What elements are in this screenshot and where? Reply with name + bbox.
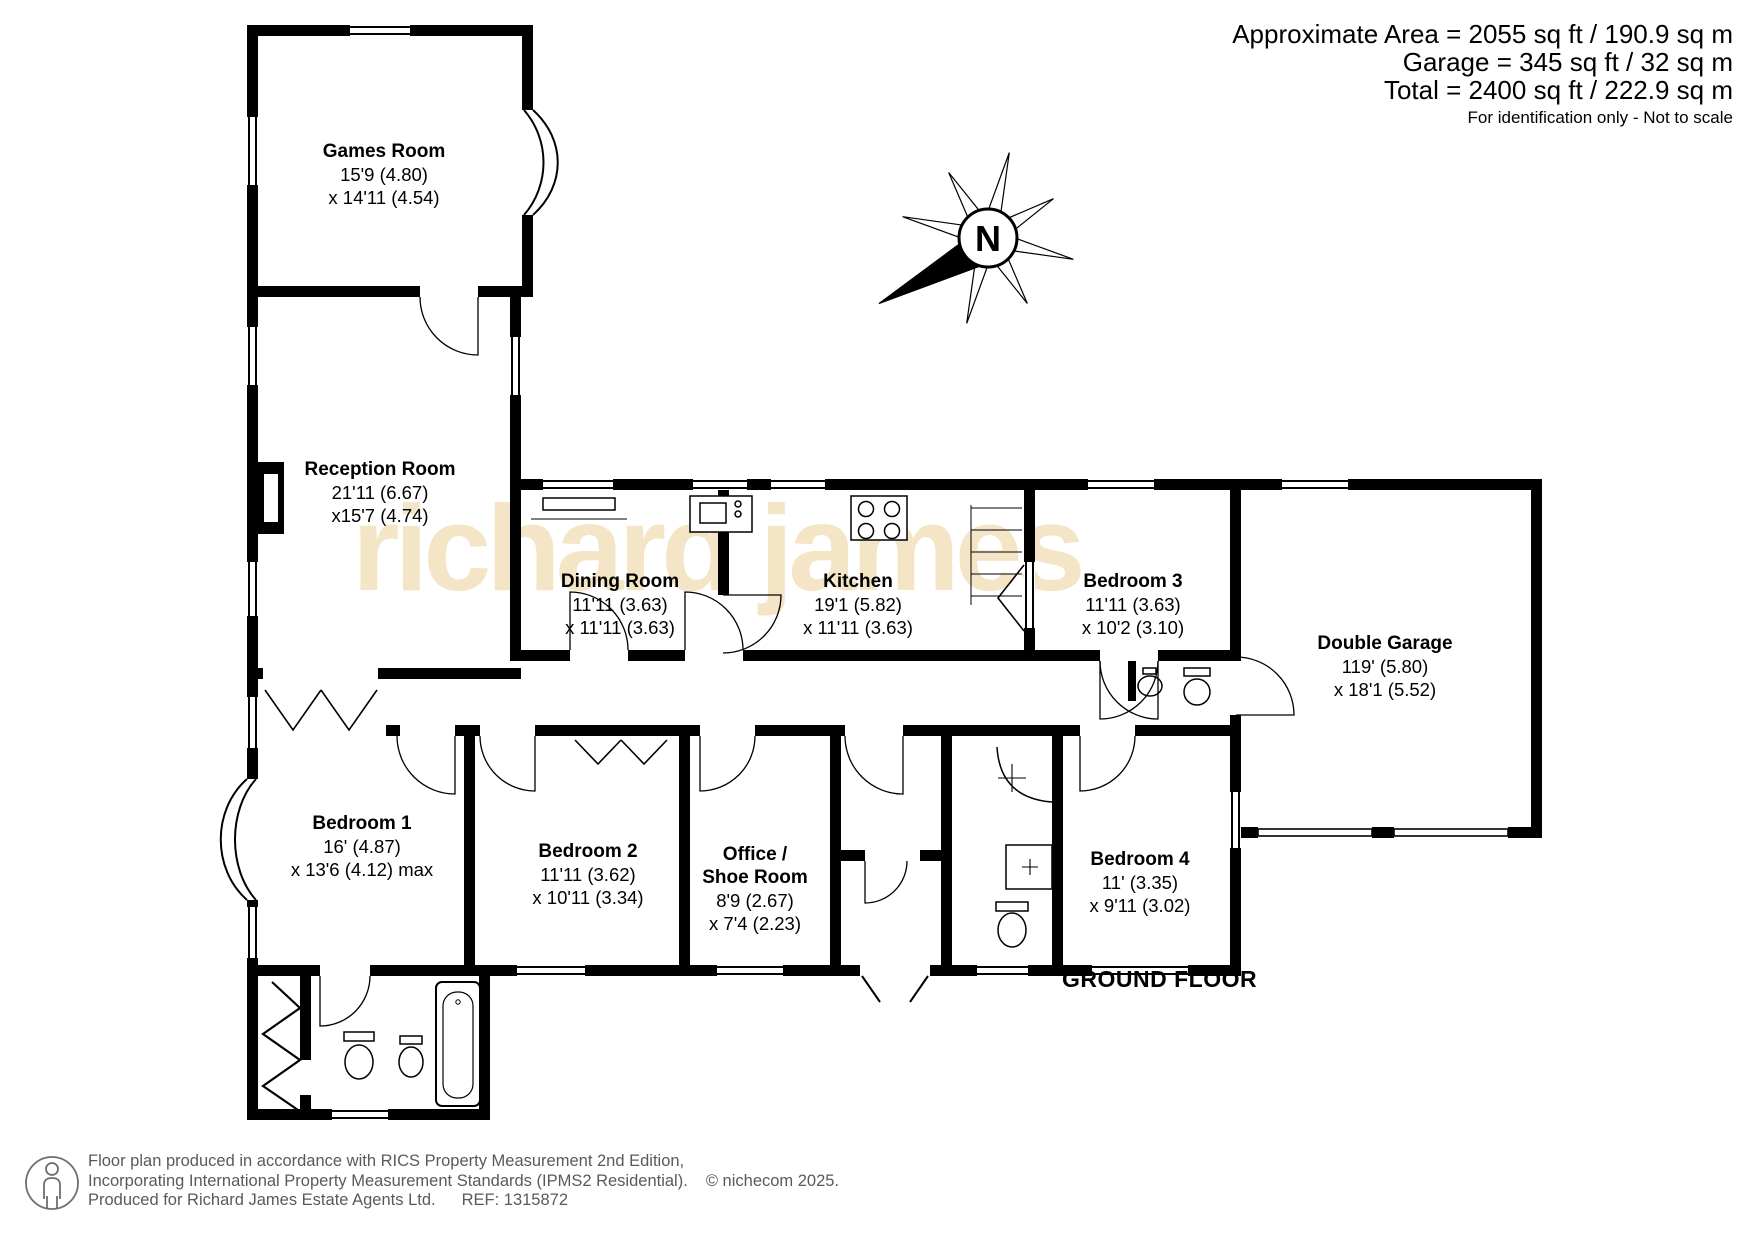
room-label-bedroom-3: Bedroom 3 11'11 (3.63) x 10'2 (3.10) (1013, 570, 1253, 639)
room-dimensions: 11'11 (3.63) (500, 593, 740, 616)
room-name: Bedroom 3 (1013, 570, 1253, 593)
compass-north-label: N (975, 218, 1001, 259)
shower-quadrant (997, 747, 1052, 802)
room-dimensions: 8'9 (2.67) (675, 889, 835, 912)
footer-disclaimer: Floor plan produced in accordance with R… (88, 1152, 839, 1211)
room-name: Double Garage (1265, 632, 1505, 655)
room-dimensions: 11' (3.35) (1020, 871, 1260, 894)
footer-line-3: Produced for Richard James Estate Agents… (88, 1191, 839, 1211)
room-dimensions: x 7'4 (2.23) (675, 912, 835, 935)
reference-number: REF: 1315872 (462, 1191, 568, 1209)
ensuite-toilet (344, 1032, 374, 1079)
room-label-office-shoe-room: Office / Shoe Room 8'9 (2.67) x 7'4 (2.2… (675, 843, 835, 935)
floor-title: GROUND FLOOR (1062, 966, 1257, 993)
ensuite-basin (399, 1036, 423, 1077)
room-label-games-room: Games Room 15'9 (4.80) x 14'11 (4.54) (264, 140, 504, 209)
room-dimensions: 19'1 (5.82) (738, 593, 978, 616)
wc-toilet (1184, 668, 1210, 705)
person-icon (24, 1152, 84, 1216)
room-label-bedroom-4: Bedroom 4 11' (3.35) x 9'11 (3.02) (1020, 848, 1260, 917)
room-dimensions: x 10'11 (3.34) (468, 886, 708, 909)
room-label-bedroom-2: Bedroom 2 11'11 (3.62) x 10'11 (3.34) (468, 840, 708, 909)
room-dimensions: 11'11 (3.63) (1013, 593, 1253, 616)
scale-disclaimer: For identification only - Not to scale (1232, 108, 1733, 128)
floorplan-page: richard james (0, 0, 1755, 1241)
kitchen-sink (690, 496, 752, 532)
room-label-dining-room: Dining Room 11'11 (3.63) x 11'11 (3.63) (500, 570, 740, 639)
room-name: Kitchen (738, 570, 978, 593)
room-dimensions: x15'7 (4.74) (260, 504, 500, 527)
total-area: Total = 2400 sq ft / 222.9 sq m (1232, 76, 1733, 104)
approximate-area: Approximate Area = 2055 sq ft / 190.9 sq… (1232, 20, 1733, 48)
produced-for-text: Produced for Richard James Estate Agents… (88, 1191, 436, 1209)
footer-line-1: Floor plan produced in accordance with R… (88, 1152, 839, 1172)
area-summary: Approximate Area = 2055 sq ft / 190.9 sq… (1232, 20, 1733, 128)
room-dimensions: 11'11 (3.62) (468, 863, 708, 886)
room-dimensions: x 18'1 (5.52) (1265, 678, 1505, 701)
room-name: Reception Room (260, 458, 500, 481)
room-dimensions: 119' (5.80) (1265, 655, 1505, 678)
footer-standards-text: Incorporating International Property Mea… (88, 1172, 688, 1190)
compass: N (879, 131, 1095, 347)
ensuite-bath (436, 982, 480, 1106)
kitchen-hob (851, 496, 907, 540)
room-dimensions: x 11'11 (3.63) (738, 616, 978, 639)
room-dimensions: 21'11 (6.67) (260, 481, 500, 504)
room-name: Shoe Room (675, 866, 835, 889)
copyright-text: © nichecom 2025. (706, 1172, 839, 1190)
room-dimensions: x 13'6 (4.12) max (242, 858, 482, 881)
footer-line-2: Incorporating International Property Mea… (88, 1172, 839, 1192)
room-dimensions: 16' (4.87) (242, 835, 482, 858)
room-name: Bedroom 1 (242, 812, 482, 835)
room-label-kitchen: Kitchen 19'1 (5.82) x 11'11 (3.63) (738, 570, 978, 639)
garage-area: Garage = 345 sq ft / 32 sq m (1232, 48, 1733, 76)
room-name: Bedroom 2 (468, 840, 708, 863)
porch-zigzag (263, 982, 300, 1110)
room-name: Bedroom 4 (1020, 848, 1260, 871)
room-dimensions: 15'9 (4.80) (264, 163, 504, 186)
room-dimensions: x 9'11 (3.02) (1020, 894, 1260, 917)
room-label-double-garage: Double Garage 119' (5.80) x 18'1 (5.52) (1265, 632, 1505, 701)
room-name: Office / (675, 843, 835, 866)
room-name: Games Room (264, 140, 504, 163)
room-label-reception-room: Reception Room 21'11 (6.67) x15'7 (4.74) (260, 458, 500, 527)
room-dimensions: x 10'2 (3.10) (1013, 616, 1253, 639)
room-label-bedroom-1: Bedroom 1 16' (4.87) x 13'6 (4.12) max (242, 812, 482, 881)
room-name: Dining Room (500, 570, 740, 593)
room-dimensions: x 14'11 (4.54) (264, 186, 504, 209)
room-dimensions: x 11'11 (3.63) (500, 616, 740, 639)
